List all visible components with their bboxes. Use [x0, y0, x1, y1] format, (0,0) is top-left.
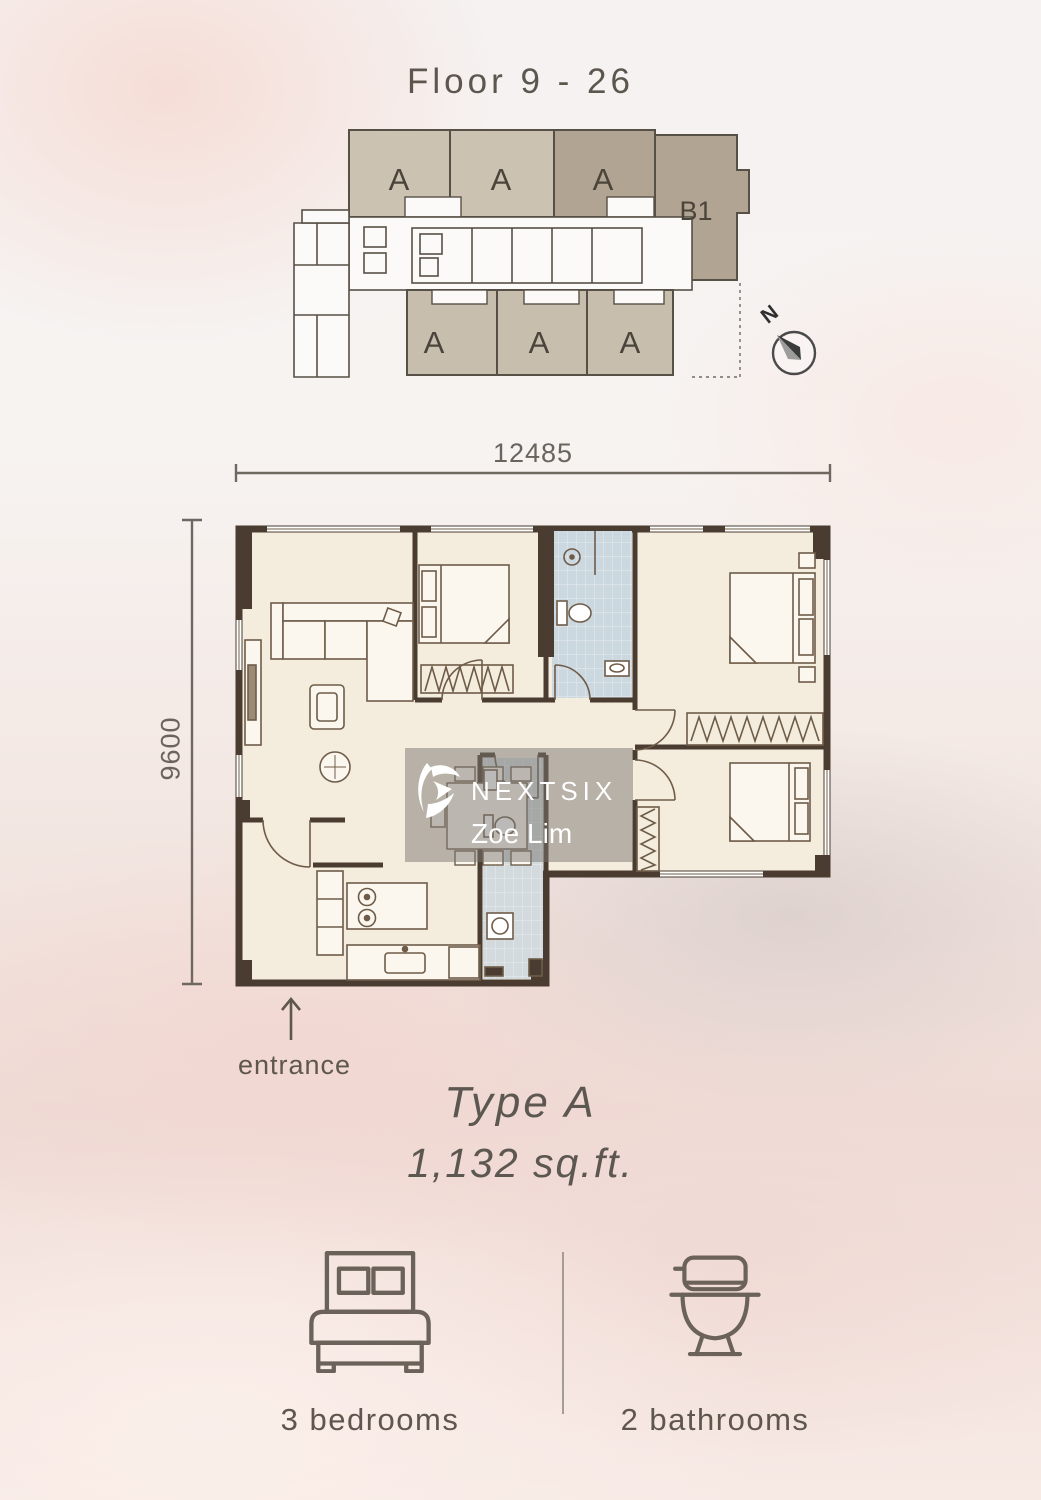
unit-label-b1: B1 [679, 196, 712, 226]
north-label: N [757, 301, 783, 328]
nextsix-logo-icon [413, 760, 463, 824]
unit-area: 1,132 sq.ft. [0, 1140, 1041, 1187]
watermark-agent: Zoe Lim [471, 818, 572, 850]
keyplan-core [349, 217, 692, 290]
bed-icon [300, 1248, 440, 1373]
watermark-brand: NEXTSIX [471, 776, 617, 807]
keyplan-left-wing [294, 210, 349, 377]
unit-label: A [389, 162, 410, 197]
dimension-width-line [233, 462, 833, 484]
feature-divider [562, 1252, 564, 1414]
bedrooms-label: 3 bedrooms [245, 1402, 495, 1438]
unit-label: A [620, 325, 641, 360]
keyplan-dashed-boundary [692, 283, 740, 379]
page-title: Floor 9 - 26 [0, 62, 1041, 102]
unit-label: A [424, 325, 445, 360]
unit-type: Type A [0, 1078, 1041, 1128]
entrance-arrow-icon [279, 995, 303, 1041]
feature-bedrooms: 3 bedrooms [245, 1248, 495, 1438]
bathrooms-label: 2 bathrooms [590, 1402, 840, 1438]
unit-label: A [529, 325, 550, 360]
floorplan-flyer: Floor 9 - 26 [0, 0, 1041, 1500]
unit-label: A [593, 162, 614, 197]
entrance-marker: entrance [238, 995, 343, 1081]
unit-info: Type A 1,132 sq.ft. [0, 1078, 1041, 1187]
toilet-icon [664, 1248, 766, 1373]
north-arrow-icon: N [757, 301, 815, 374]
feature-bathrooms: 2 bathrooms [590, 1248, 840, 1438]
unit-label: A [491, 162, 512, 197]
watermark: NEXTSIX Zoe Lim [405, 748, 633, 862]
dimension-height-line [168, 515, 214, 989]
entrance-label: entrance [238, 1050, 343, 1081]
building-key-plan: A A A B1 A A A N [272, 115, 817, 407]
